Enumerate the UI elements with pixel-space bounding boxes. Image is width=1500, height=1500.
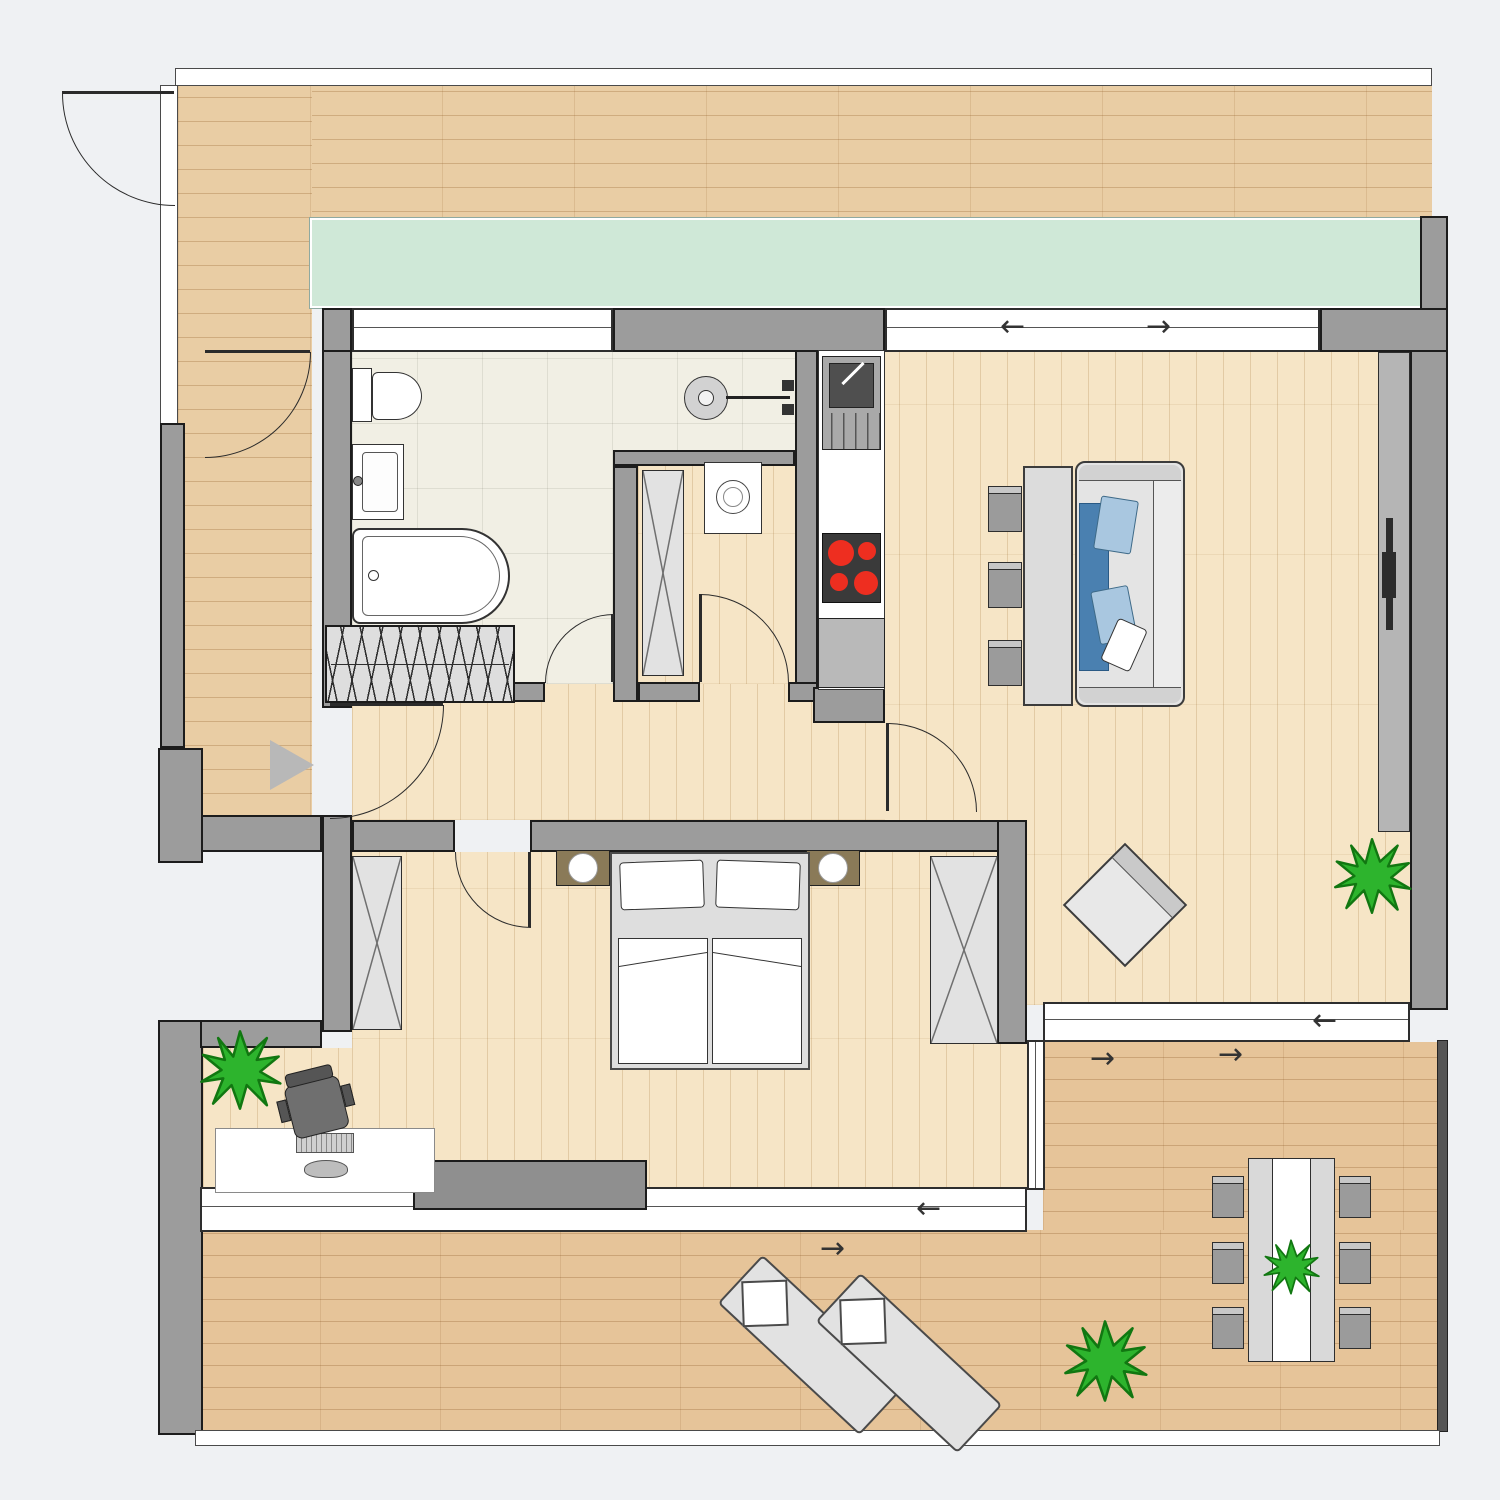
plant (198, 1028, 282, 1112)
side-table (1023, 466, 1073, 706)
wall (1320, 308, 1448, 352)
plant (1062, 1318, 1148, 1404)
desk-mouse (304, 1160, 348, 1178)
wardrobe-x-icon (353, 857, 401, 1029)
floor-plan: ← → ← → → → ← (0, 0, 1500, 1500)
outdoor-chair (1212, 1307, 1244, 1349)
kitchen-cabinet (818, 618, 885, 688)
planter-strip (310, 218, 1425, 308)
outdoor-chair (1339, 1242, 1371, 1284)
wall (997, 820, 1027, 1044)
living-sliding-window-bottom[interactable] (1043, 1002, 1410, 1042)
entry-arrow (270, 740, 314, 790)
bedroom-wardrobe-right (930, 856, 998, 1044)
bed-pillow-left (619, 860, 705, 911)
tv-mount (1382, 552, 1396, 598)
outdoor-chair (1339, 1176, 1371, 1218)
slide-arrow-right: → (820, 1234, 845, 1264)
slide-arrow-right: → (1090, 1044, 1115, 1074)
living-chair (988, 640, 1022, 686)
wall (352, 820, 455, 852)
shower-valve (782, 404, 794, 415)
sofa-armrest (1079, 465, 1181, 481)
sofa-backrest (1153, 481, 1181, 687)
slide-arrow-left: ← (1000, 312, 1025, 342)
wall (158, 1020, 203, 1435)
bathroom-window (352, 308, 613, 352)
utility-wardrobe (642, 470, 684, 676)
wall (795, 350, 818, 702)
outdoor-chair (1212, 1176, 1244, 1218)
slide-arrow-left: ← (916, 1194, 941, 1224)
wall (322, 815, 352, 1032)
washing-machine-drum (723, 487, 743, 507)
terrace-wall-right (1437, 1040, 1448, 1432)
wall (1420, 216, 1448, 310)
balcony-railing-top (175, 68, 1432, 86)
wall (613, 308, 885, 352)
wall (813, 687, 885, 723)
kitchen-sink (829, 363, 874, 408)
exterior-door-swing (62, 93, 175, 206)
burner (830, 573, 848, 591)
bed-lamp-right (818, 853, 848, 883)
shower-arm (726, 396, 790, 399)
living-chair (988, 486, 1022, 532)
wall (322, 308, 352, 352)
outdoor-chair (1212, 1242, 1244, 1284)
balcony-left-wing-floor (178, 86, 312, 818)
slide-arrow-right: → (1218, 1040, 1243, 1070)
wall (158, 748, 203, 863)
bedroom-wardrobe-left (352, 856, 402, 1030)
slide-arrow-right: → (1146, 312, 1171, 342)
wall (613, 466, 638, 702)
bathtub-faucet (368, 570, 379, 581)
bathtub-inner (362, 536, 500, 616)
coat-rack (325, 625, 515, 703)
wall (1410, 350, 1448, 1010)
armchair-backrest (1112, 846, 1184, 918)
terrace-railing-bottom (195, 1430, 1440, 1446)
bed-mattress-right (712, 938, 802, 1064)
shower-head-center (698, 390, 714, 406)
dresser (413, 1160, 647, 1210)
outdoor-chair (1339, 1307, 1371, 1349)
corner-window-connector (1027, 1040, 1045, 1190)
burner (858, 542, 876, 560)
washbasin-faucet (353, 476, 363, 486)
armchair (1062, 842, 1188, 968)
living-chair (988, 562, 1022, 608)
wall (530, 820, 1000, 852)
slide-arrow-left: ← (1312, 1006, 1337, 1036)
wall (160, 423, 185, 748)
wardrobe-x-icon (643, 471, 683, 675)
living-sliding-window-top[interactable] (885, 308, 1320, 352)
bed-lamp-left (568, 853, 598, 883)
wall (512, 682, 545, 702)
plant (1332, 836, 1412, 916)
burner (854, 571, 878, 595)
sofa-armrest (1079, 687, 1181, 703)
bed-pillow-right (715, 860, 801, 911)
burner (828, 540, 854, 566)
plant-on-table (1262, 1238, 1320, 1296)
shower-valve (782, 380, 794, 391)
wall (638, 682, 700, 702)
toilet (372, 372, 422, 420)
toilet-cistern (352, 368, 372, 422)
wardrobe-x-icon (931, 857, 997, 1043)
washbasin-bowl (362, 452, 398, 512)
wall (183, 815, 322, 852)
armchair-seat (1063, 843, 1187, 967)
bed-mattress-left (618, 938, 708, 1064)
